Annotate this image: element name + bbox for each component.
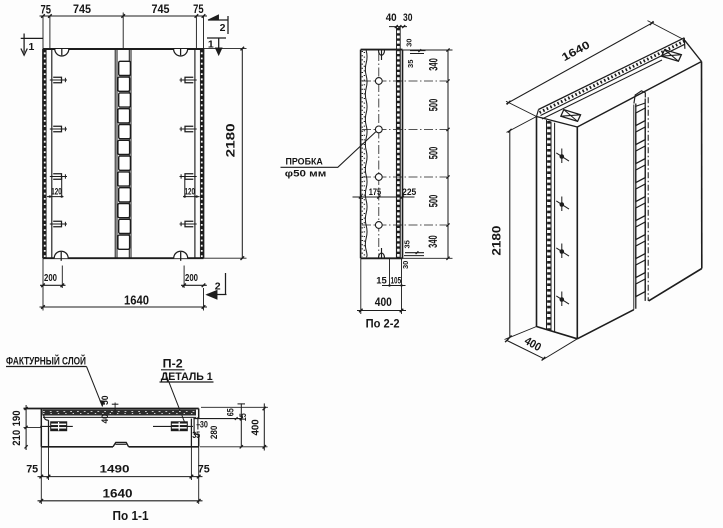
svg-text:175: 175 [369,187,381,197]
svg-text:75: 75 [40,5,51,17]
svg-text:φ50 мм: φ50 мм [285,168,327,178]
svg-text:120: 120 [184,187,195,198]
svg-text:1640: 1640 [124,293,149,308]
svg-text:40: 40 [100,414,110,424]
svg-text:340: 340 [429,58,441,71]
svg-text:500: 500 [429,195,441,208]
svg-text:ФАКТУРНЫЙ СЛОЙ: ФАКТУРНЫЙ СЛОЙ [6,355,86,368]
svg-text:105: 105 [390,275,401,285]
svg-text:35: 35 [406,60,415,68]
svg-text:40: 40 [386,12,397,24]
svg-text:745: 745 [73,4,92,16]
svg-text:210: 210 [11,430,23,446]
svg-text:50: 50 [100,395,110,405]
svg-text:П-2: П-2 [163,358,183,370]
svg-text:35: 35 [192,429,200,440]
svg-text:400: 400 [250,419,261,436]
svg-text:190: 190 [11,410,23,426]
svg-text:2180: 2180 [226,123,238,157]
svg-text:30: 30 [404,39,413,47]
svg-text:120: 120 [51,187,62,198]
svg-text:75: 75 [193,4,204,16]
svg-text:75: 75 [26,464,38,476]
svg-text:340: 340 [428,235,440,248]
svg-text:280: 280 [209,426,219,440]
svg-text:35: 35 [402,240,411,248]
svg-text:30: 30 [200,418,208,429]
svg-text:2: 2 [215,281,221,293]
svg-text:30: 30 [401,261,410,269]
svg-text:По 2-2: По 2-2 [366,316,400,330]
svg-text:30: 30 [403,12,413,24]
svg-text:1490: 1490 [100,464,130,476]
svg-text:2180: 2180 [492,226,504,256]
svg-text:1: 1 [28,41,34,53]
svg-text:2: 2 [220,22,226,34]
svg-text:200: 200 [185,273,198,284]
svg-text:ПРОБКА: ПРОБКА [286,156,324,166]
svg-text:1640: 1640 [103,486,133,500]
svg-text:200: 200 [44,273,57,284]
svg-text:75: 75 [198,464,210,476]
svg-text:400: 400 [375,295,392,309]
svg-text:500: 500 [429,99,441,112]
svg-text:225: 225 [402,187,416,197]
svg-text:65: 65 [225,408,235,416]
svg-text:15: 15 [238,413,248,421]
svg-text:По 1-1: По 1-1 [113,508,149,523]
svg-text:500: 500 [429,147,441,160]
svg-text:745: 745 [152,4,171,16]
svg-text:15: 15 [376,275,387,285]
